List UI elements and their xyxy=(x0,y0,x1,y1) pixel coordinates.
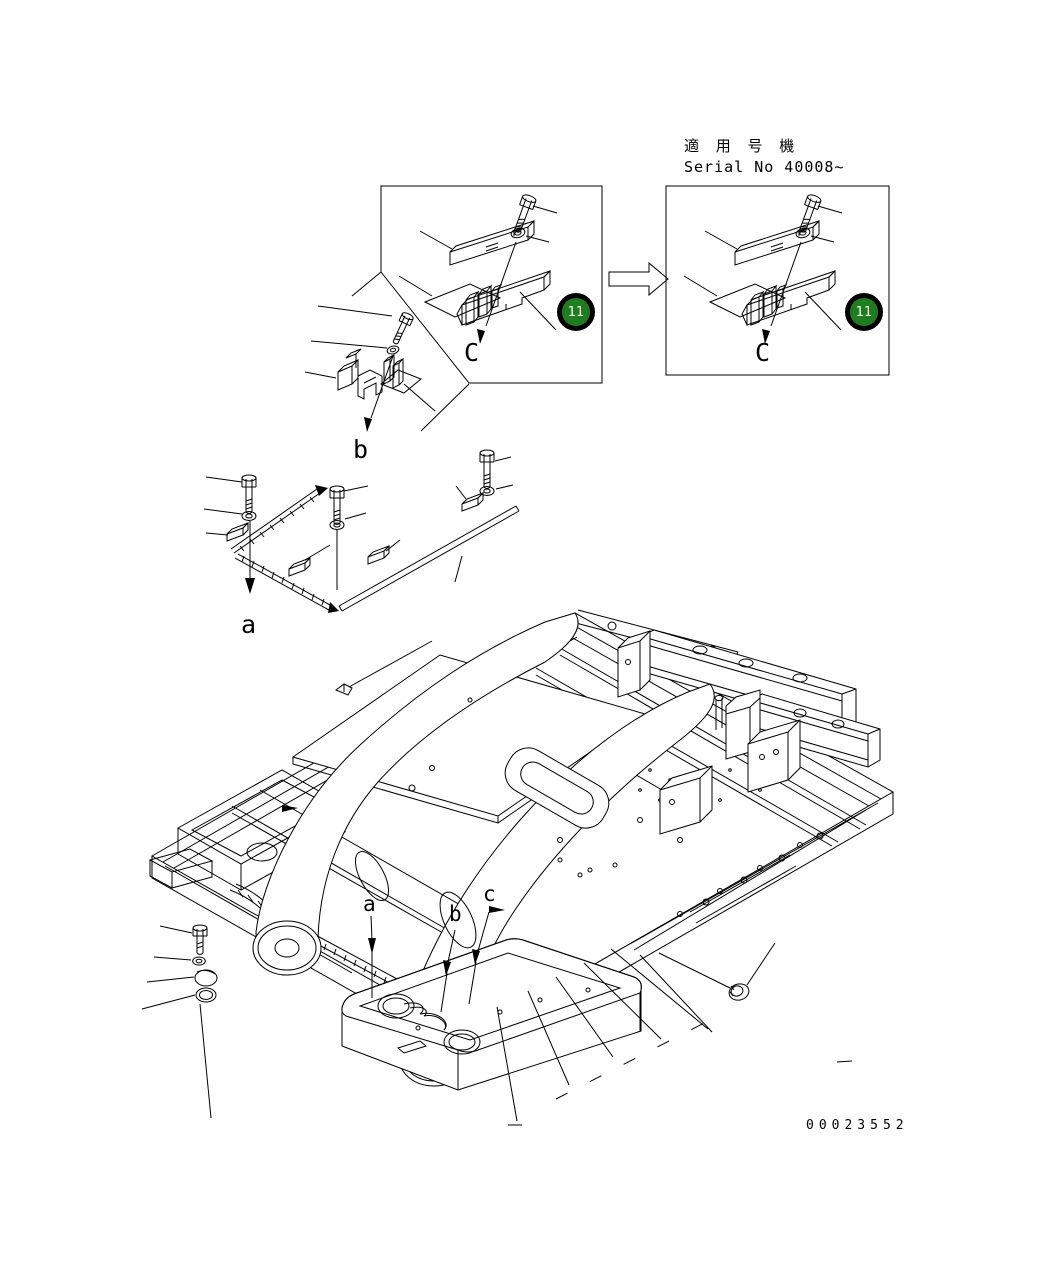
frame-ref-label-c: c xyxy=(483,884,496,905)
section-label-c-before: C xyxy=(464,340,479,365)
drawing-number: 00023552 xyxy=(806,1119,909,1132)
serial-range-text: Serial No 40008~ xyxy=(684,160,845,175)
item-number-badge-after: 11 xyxy=(845,293,883,331)
main-frame-drawing xyxy=(150,610,893,1090)
exploded-view-a xyxy=(204,450,519,613)
section-label-c-after: C xyxy=(755,340,770,365)
diagram-page: 適 用 号 機 Serial No 40008~ 11 11 C C b a a… xyxy=(0,0,1051,1283)
applicability-title-jp: 適 用 号 機 xyxy=(684,139,800,154)
line-art xyxy=(0,0,1051,1283)
exploded-view-b-label: b xyxy=(353,437,368,462)
detail-box-after xyxy=(666,186,889,375)
frame-ref-label-b: b xyxy=(449,904,462,925)
item-number-text: 11 xyxy=(568,305,585,320)
item-number-text: 11 xyxy=(856,305,873,320)
change-arrow-icon xyxy=(609,263,668,295)
item-number-badge-before: 11 xyxy=(557,293,595,331)
exploded-view-a-label: a xyxy=(241,612,256,637)
exploded-view-b xyxy=(305,306,435,432)
frame-ref-label-a: a xyxy=(363,894,376,915)
hardware-lower-left xyxy=(142,925,217,1118)
